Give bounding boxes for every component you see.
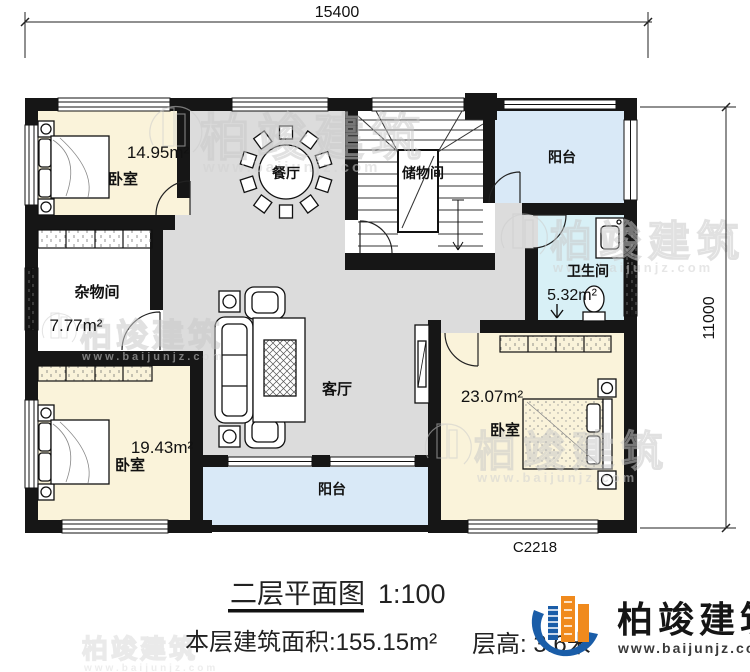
floor-plan-page: 柏竣建筑 www.baijunjz.com 柏竣建筑 www.baijunjz.… [0,0,750,672]
title-block: 二层平面图 1:100 本层建筑面积:155.15m² 层高: 3.6米 [185,579,591,658]
watermark-text: 柏竣建筑 [82,634,198,664]
dimension-height: 11000 [701,296,718,339]
dimension-width: 15400 [315,4,360,21]
room-area-bedroom-tl: 14.95m² [127,143,190,162]
window-code-label: C2218 [513,539,557,556]
room-label-balcony-bottom: 阳台 [318,481,346,497]
floor-plan-drawing: 柏竣建筑 www.baijunjz.com 柏竣建筑 www.baijunjz.… [0,0,750,672]
tv-cabinet [415,325,429,403]
watermark-url: www.baijunjz.com [81,351,225,363]
company-name: 柏竣建筑 [617,599,750,640]
drawing-title: 二层平面图 [230,579,365,609]
watermark-url: www.baijunjz.com [476,470,637,485]
room-label-stair-storage: 储物间 [401,165,444,181]
room-area-bedroom-br: 23.07m² [461,387,524,406]
watermark-text: 柏竣建筑 [200,110,428,166]
room-label-balcony-top: 阳台 [548,149,576,165]
room-label-bedroom-tl: 卧室 [108,170,138,188]
room-label-bedroom-bl: 卧室 [115,456,145,474]
room-area-utility: 7.77m² [50,316,103,335]
room-label-living: 客厅 [321,380,352,398]
room-label-bathroom: 卫生间 [567,263,609,279]
room-area-bathroom: 5.32m² [547,287,597,304]
floor-area-text: 本层建筑面积:155.15m² [185,629,437,656]
room-label-bedroom-br: 卧室 [490,421,520,439]
company-website: www.baijunjz.com [617,640,750,656]
room-balcony-bottom [203,467,428,525]
room-area-bedroom-bl: 19.43m² [131,438,194,457]
watermark-url: www.baijunjz.com [83,663,218,672]
room-label-utility: 杂物间 [74,283,119,301]
watermark-text: 柏竣建筑 [550,218,746,265]
drawing-scale: 1:100 [378,579,446,609]
room-label-dining: 餐厅 [271,165,300,181]
